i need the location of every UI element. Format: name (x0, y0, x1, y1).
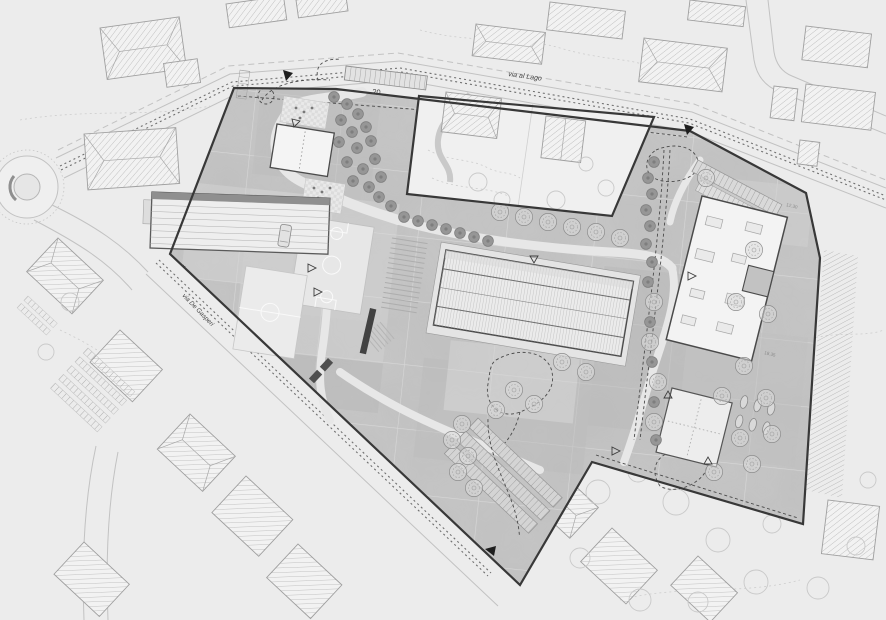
school-building-a (270, 124, 334, 177)
existing-gym-building (142, 192, 330, 254)
football-court (233, 266, 307, 359)
parking-count-label: 20 (372, 87, 381, 97)
site-plan-canvas: via al Lago via De Gasperi 20 3 12.30 18… (0, 0, 886, 620)
site-plan-page: via al Lago via De Gasperi 20 3 12.30 18… (0, 0, 886, 620)
